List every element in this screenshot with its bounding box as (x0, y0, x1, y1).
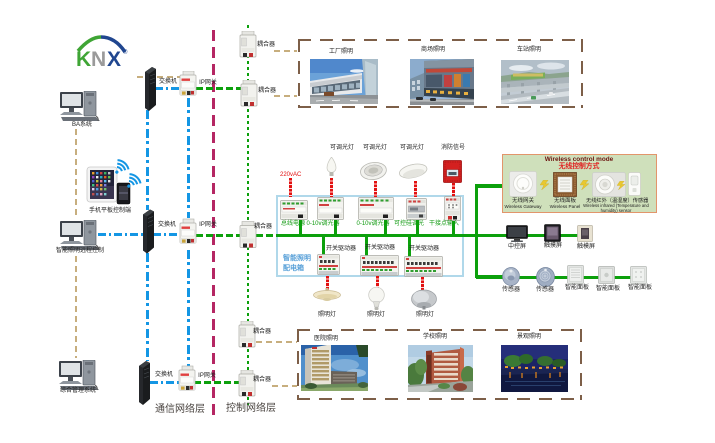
svg-text:X: X (107, 48, 121, 69)
svg-text:K: K (76, 48, 91, 69)
svg-text:®: ® (123, 49, 128, 56)
svg-text:N: N (91, 48, 106, 69)
